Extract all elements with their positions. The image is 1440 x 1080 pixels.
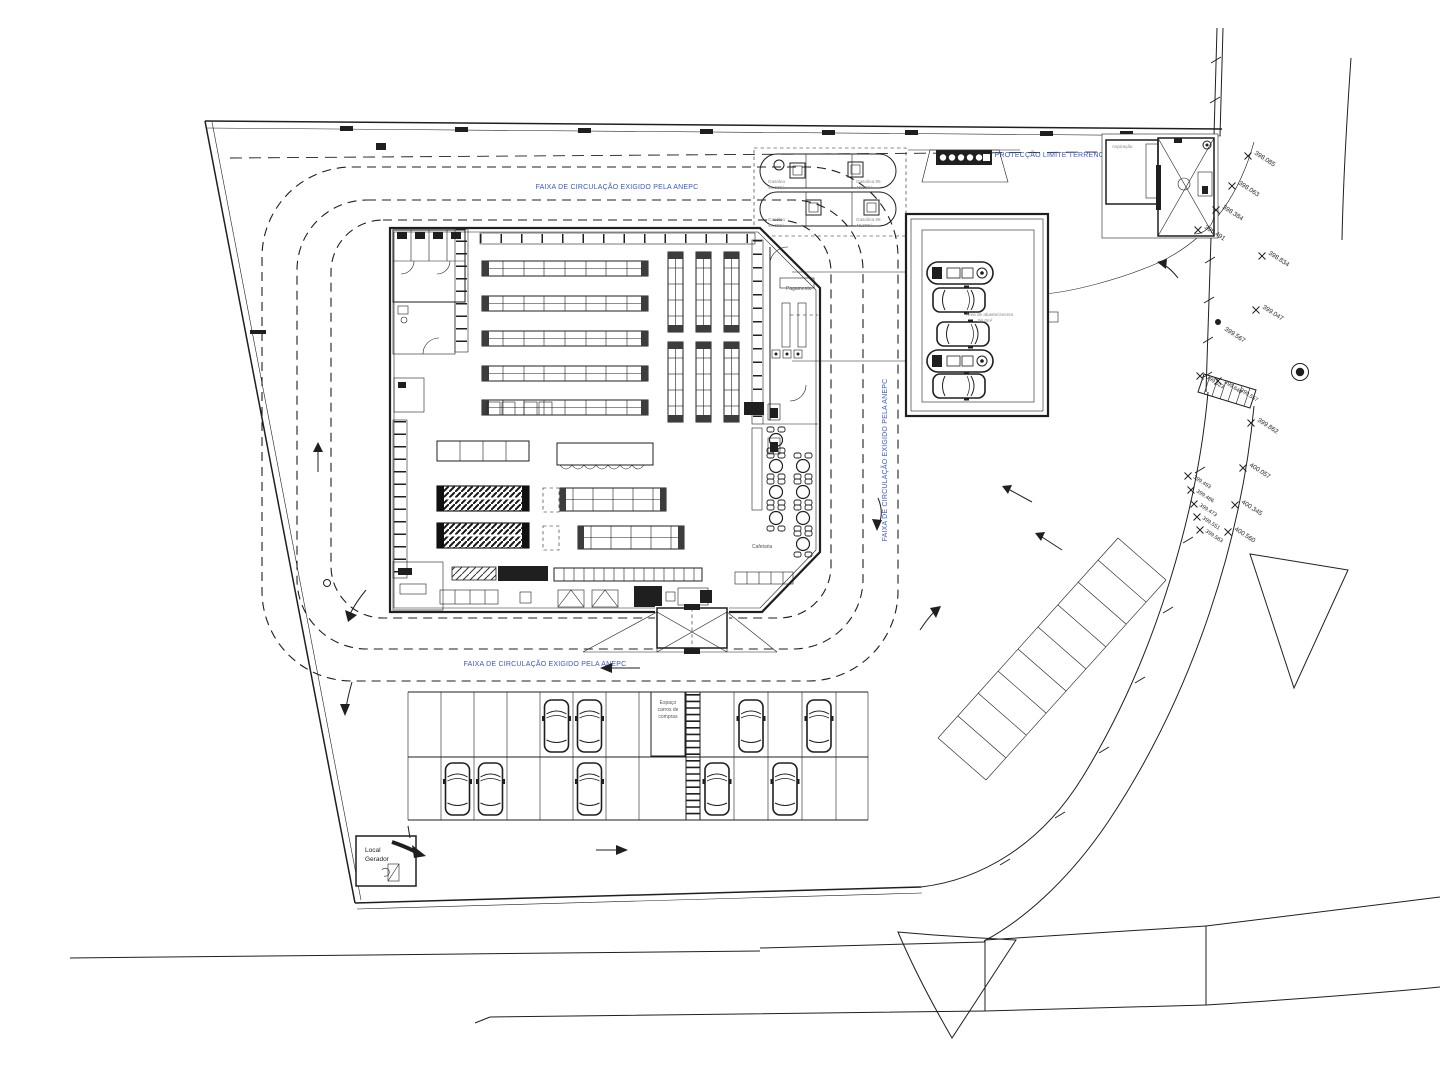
tank2-left-label: Gasóleo bbox=[768, 217, 786, 222]
circulation-label-top: FAIXA DE CIRCULAÇÃO EXIGIDO PELA ANEPC bbox=[536, 182, 699, 191]
svg-text:Gerador: Gerador bbox=[365, 856, 390, 863]
generator-label: Local bbox=[365, 847, 381, 854]
svg-text:Espaço: Espaço bbox=[660, 700, 677, 706]
cafetaria-label: Cafetaria bbox=[752, 544, 773, 550]
circulation-label-bottom: FAIXA DE CIRCULAÇÃO EXIGIDO PELA ANEPC bbox=[464, 659, 627, 668]
site-plan-page: FAIXA DE PROTECÇÃO LIMITE TERRENO (2 met… bbox=[0, 0, 1440, 1080]
tank1-left-label: Gasóleo bbox=[768, 179, 786, 184]
fuel-area-label: Área de abastecimento bbox=[966, 311, 1014, 317]
svg-text:40.000 l: 40.000 l bbox=[856, 185, 872, 190]
aspiracao-label: Aspiração bbox=[1112, 144, 1133, 149]
svg-text:carros de: carros de bbox=[658, 707, 679, 713]
pagamento-label: Pagamento bbox=[786, 286, 812, 292]
supermarket-building: Pagamento Cafetaria bbox=[390, 228, 820, 654]
svg-text:compras: compras bbox=[658, 714, 678, 720]
tank1-right-label: Gasolina 95 bbox=[856, 179, 881, 184]
fuel-kiosk: Aspiração bbox=[1102, 134, 1218, 238]
site-plan-drawing: FAIXA DE PROTECÇÃO LIMITE TERRENO (2 met… bbox=[0, 0, 1440, 1080]
svg-text:40.000 l: 40.000 l bbox=[768, 223, 784, 228]
svg-text:56.0m²: 56.0m² bbox=[978, 318, 993, 323]
svg-text:40.000 l: 40.000 l bbox=[768, 185, 784, 190]
tank2-right-label: Gasolina 98 bbox=[856, 217, 881, 222]
svg-text:40.000 l: 40.000 l bbox=[856, 223, 872, 228]
